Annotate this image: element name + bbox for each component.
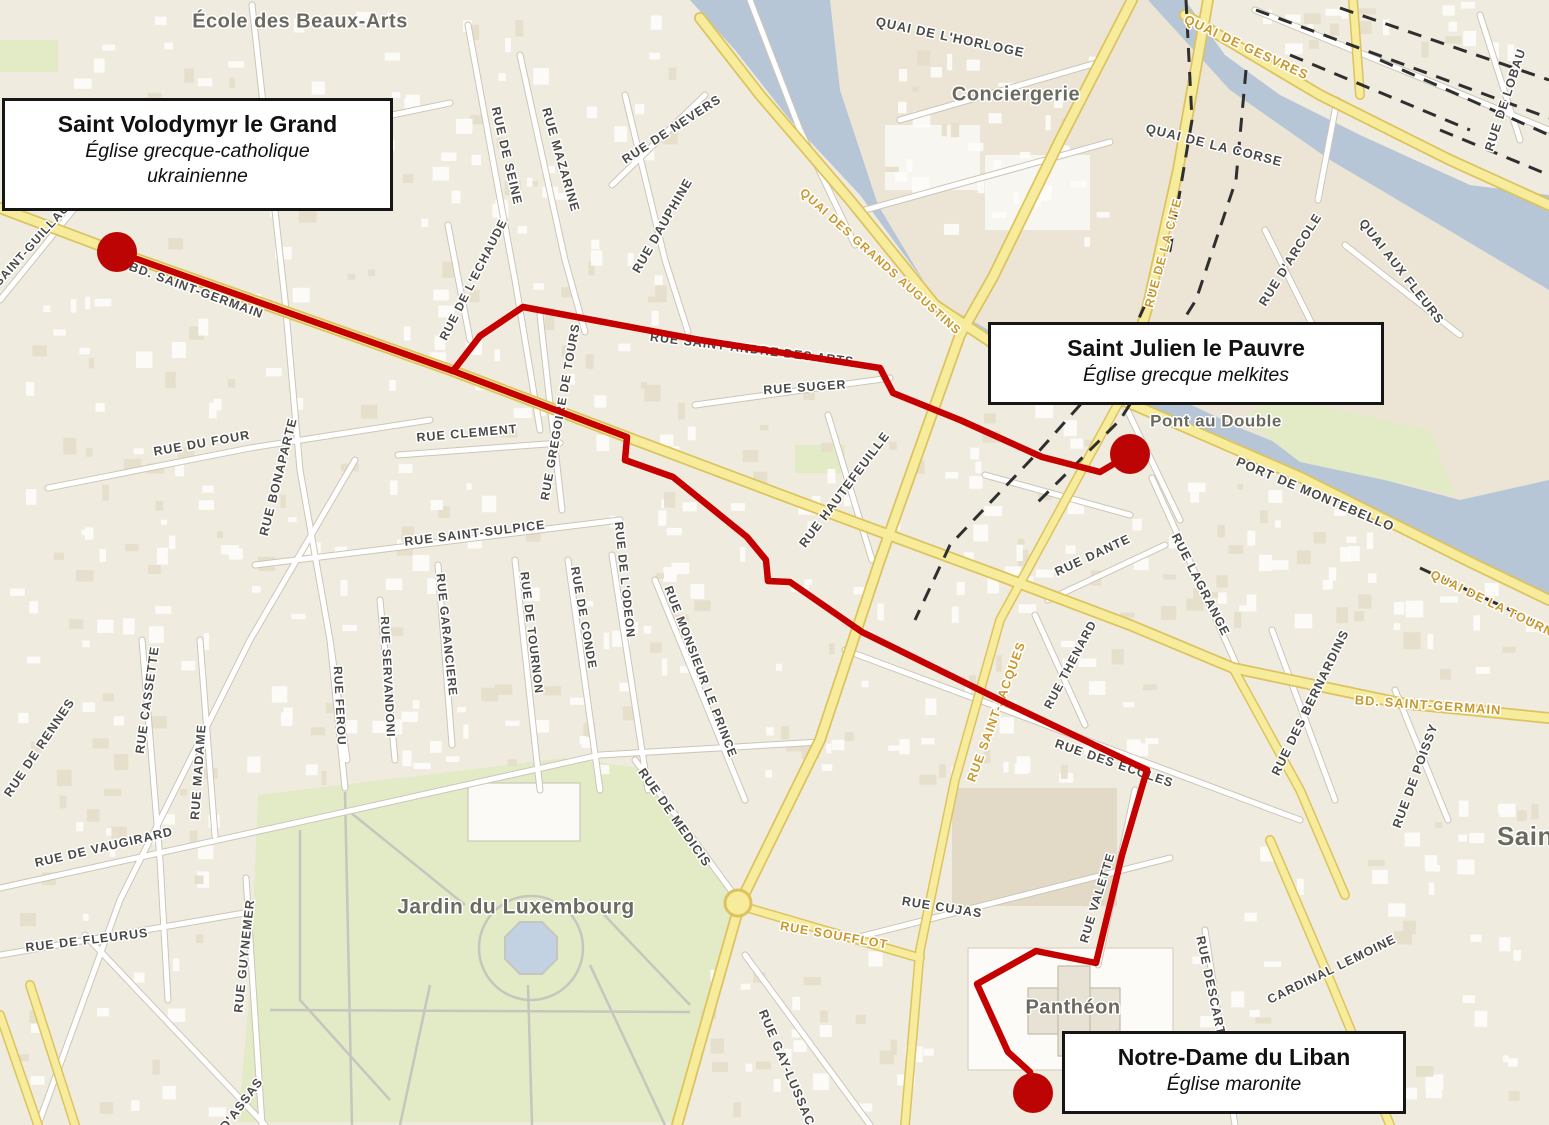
svg-text:Saint: Saint	[1497, 821, 1549, 851]
callout-saint-volodymyr: Saint Volodymyr le Grand Église grecque-…	[2, 98, 393, 211]
roundabout	[725, 890, 751, 916]
church-marker[interactable]	[1110, 434, 1150, 474]
callout-subtitle: Église maronite	[1075, 1072, 1393, 1098]
callout-subtitle: Église grecque melkites	[1001, 363, 1371, 389]
callout-title: Saint Julien le Pauvre	[1001, 334, 1371, 363]
callout-title: Notre-Dame du Liban	[1075, 1043, 1393, 1072]
svg-text:Pont au Double: Pont au Double	[1150, 411, 1282, 430]
church-marker[interactable]	[97, 232, 137, 272]
callout-title: Saint Volodymyr le Grand	[15, 110, 380, 139]
svg-text:École des Beaux-Arts: École des Beaux-Arts	[192, 9, 408, 32]
church-marker[interactable]	[1013, 1073, 1053, 1113]
callout-subtitle-2: ukrainienne	[15, 164, 380, 190]
callout-saint-julien: Saint Julien le Pauvre Église grecque me…	[988, 322, 1384, 405]
svg-text:Panthéon: Panthéon	[1025, 996, 1120, 1018]
callout-notre-dame-du-liban: Notre-Dame du Liban Église maronite	[1062, 1031, 1406, 1114]
luxembourg-pond	[505, 922, 557, 974]
callout-subtitle: Église grecque-catholique	[15, 139, 380, 165]
svg-text:Jardin du Luxembourg: Jardin du Luxembourg	[397, 896, 635, 919]
map-container: École des Beaux-ArtsRUE SAINT-GUILLAUMEB…	[0, 0, 1549, 1125]
svg-text:Conciergerie: Conciergerie	[952, 83, 1080, 105]
